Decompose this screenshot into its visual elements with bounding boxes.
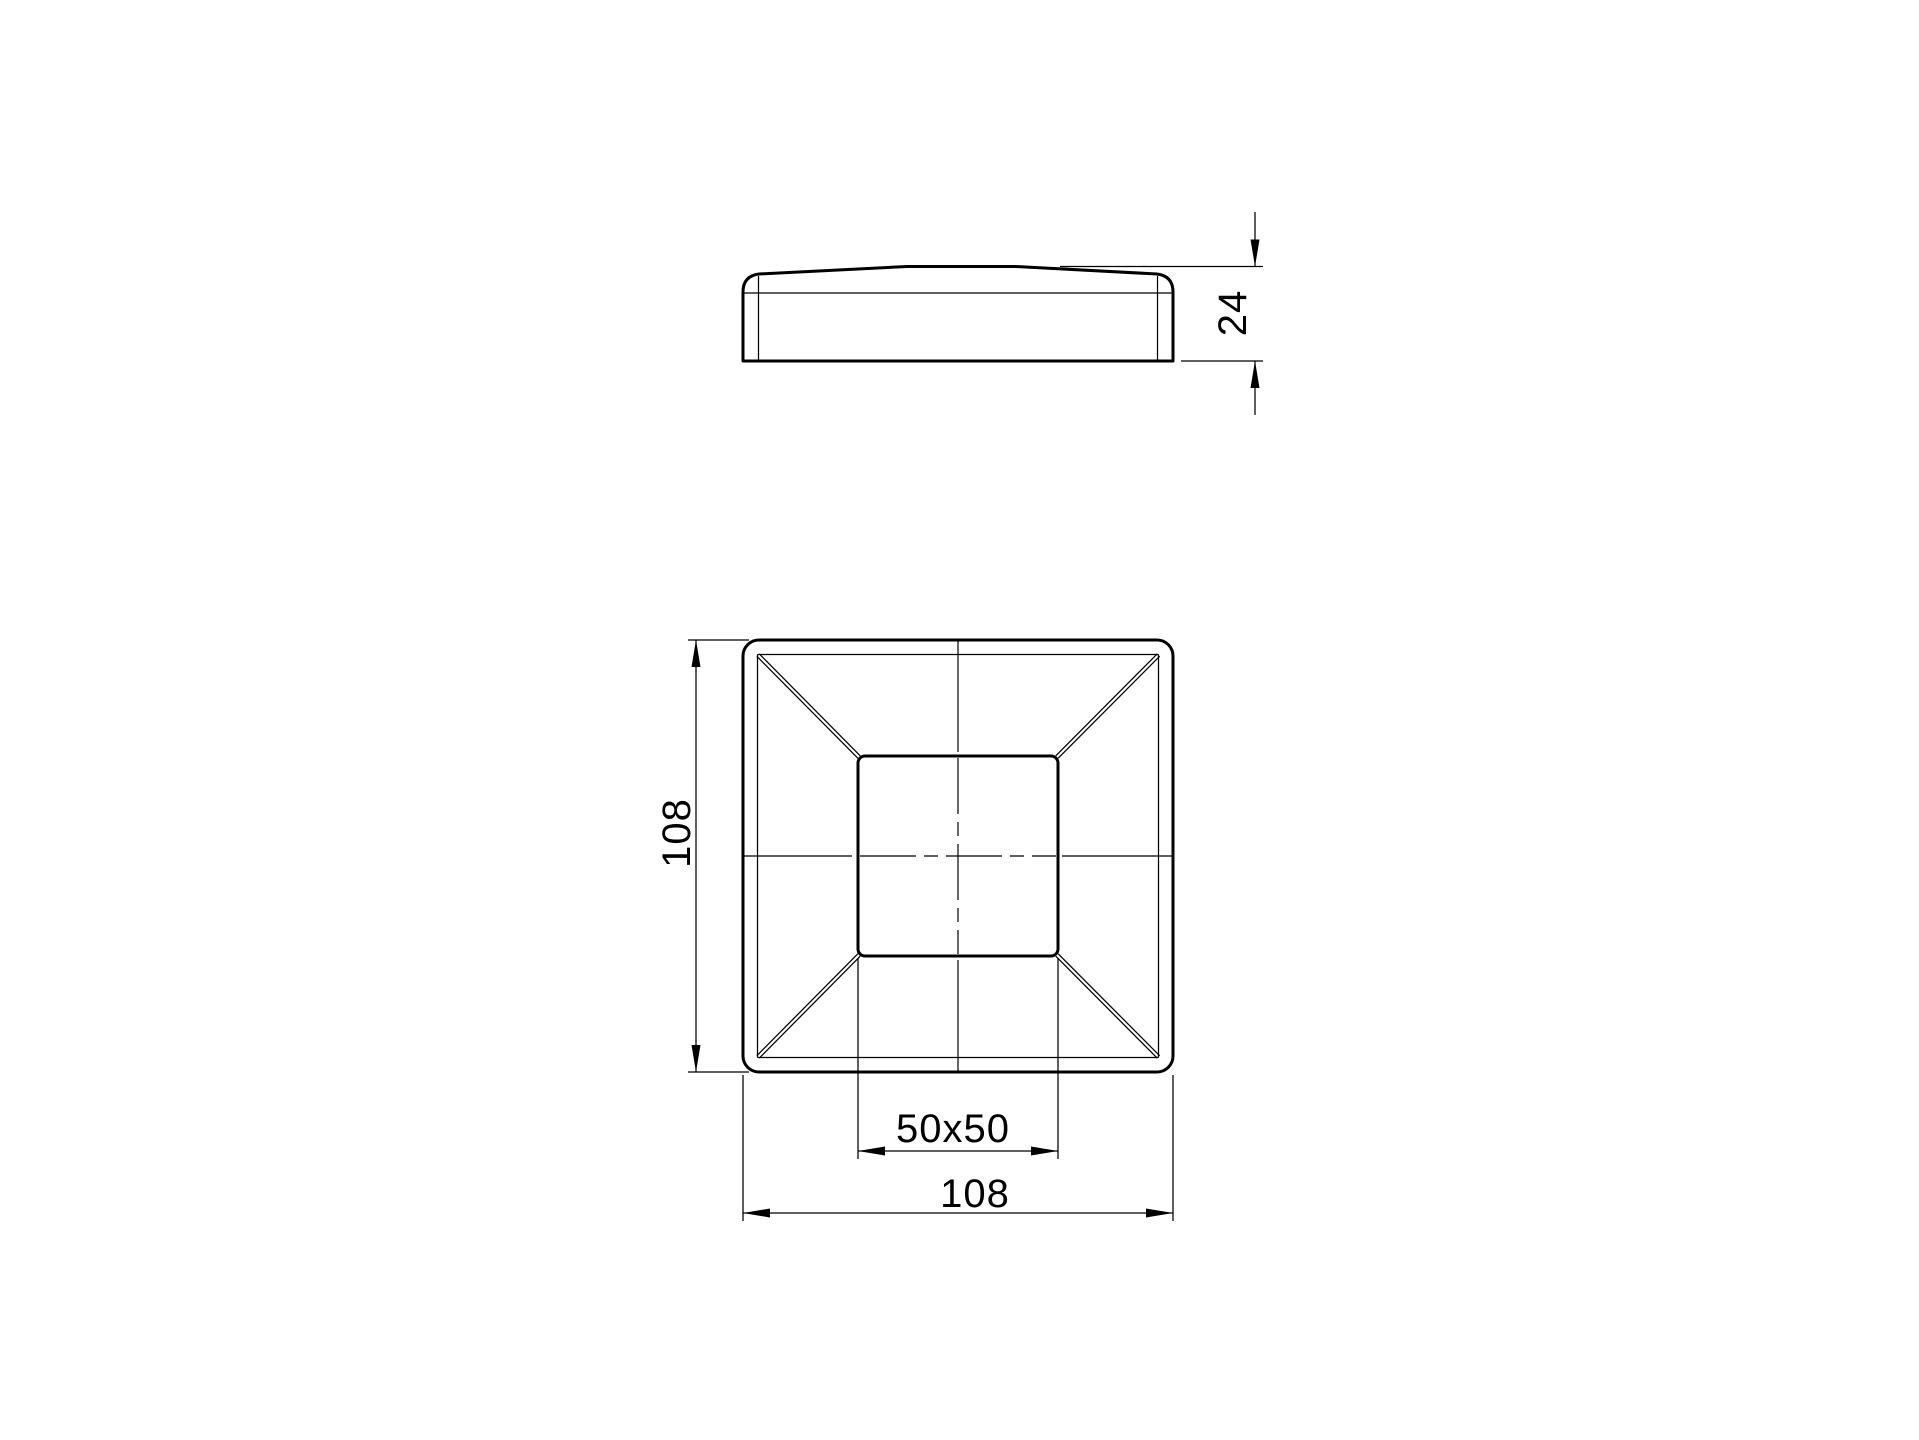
tangent-edge-bottom-left [759,956,860,1058]
arrowhead-right-icon [1031,1147,1058,1156]
tangent-edge-bottom-left [757,954,858,1056]
arrowhead-left-icon [858,1147,885,1156]
arrowhead-right-icon [1146,1209,1173,1218]
drawing-sheet: 24 [0,0,1919,1440]
dim-cap-height-label: 24 [1211,290,1255,337]
arrowhead-left-icon [743,1209,770,1218]
centerlines [744,641,1172,1071]
tangent-edge-top-left [757,656,858,758]
dim-post-section-label: 50x50 [896,1107,1010,1151]
technical-drawing: 24 [0,0,1919,1440]
tangent-edge-bottom-right [1056,956,1158,1058]
arrowhead-down-icon [692,1045,701,1072]
plan-view [743,640,1173,1072]
dim-plan-width-label: 108 [940,1172,1010,1216]
tangent-edge-top-left [759,654,860,756]
side-view [743,267,1173,362]
tangent-edge-top-right [1056,654,1158,756]
arrowhead-up-icon [1251,361,1260,388]
tangent-edge-bottom-right [1058,954,1160,1056]
dim-plan-height: 108 [655,640,749,1072]
tangent-edge-top-right [1058,656,1160,758]
dim-cap-height: 24 [1060,212,1263,415]
arrowhead-down-icon [1251,240,1260,267]
dim-plan-height-label: 108 [655,798,699,868]
side-view-outline [743,267,1173,362]
arrowhead-up-icon [692,640,701,667]
